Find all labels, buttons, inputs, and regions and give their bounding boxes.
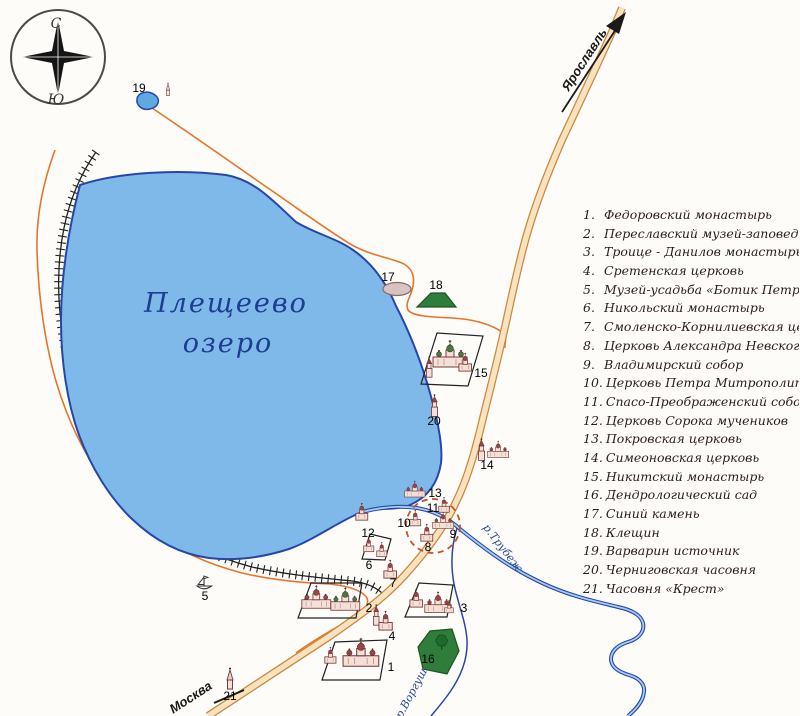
marker-5: 5	[202, 589, 209, 603]
marker-2: 2	[366, 601, 373, 615]
marker-3: 3	[461, 601, 468, 615]
legend-item-8: 8.Церковь Александра Невского	[583, 337, 799, 356]
marker-21: 21	[223, 689, 237, 703]
legend-num: 12.	[583, 412, 603, 431]
legend-item-15: 15.Никитский монастырь	[583, 468, 799, 487]
legend-label: Федоровский монастырь	[604, 207, 772, 222]
lake-name-line2: озеро	[183, 328, 274, 359]
legend-num: 14.	[583, 449, 603, 468]
legend-label: Церковь Сорока мучеников	[606, 413, 788, 428]
legend-item-14: 14.Симеоновская церковь	[583, 449, 799, 468]
legend-num: 15.	[583, 468, 603, 487]
legend-num: 16.	[583, 486, 603, 505]
legend-label: Дендрологический сад	[606, 487, 757, 502]
marker-4: 4	[389, 629, 396, 643]
legend-num: 20.	[583, 561, 603, 580]
legend-item-3: 3.Троице - Данилов монастырь	[583, 243, 799, 262]
legend-item-19: 19.Варварин источник	[583, 542, 799, 561]
legend-label: Никитский монастырь	[606, 469, 764, 484]
legend-item-18: 18.Клещин	[583, 524, 799, 543]
legend-num: 6.	[583, 299, 601, 318]
legend-num: 18.	[583, 524, 603, 543]
legend-num: 11.	[583, 393, 603, 412]
marker-14: 14	[480, 458, 494, 472]
marker-1: 1	[388, 660, 395, 674]
legend-item-20: 20.Черниговская часовня	[583, 561, 799, 580]
legend-num: 3.	[583, 243, 601, 262]
legend-item-1: 1.Федоровский монастырь	[583, 206, 799, 225]
legend-num: 8.	[583, 337, 601, 356]
legend-num: 1.	[583, 206, 601, 225]
marker-6: 6	[366, 558, 373, 572]
legend-label: Клещин	[606, 525, 660, 540]
legend-num: 4.	[583, 262, 601, 281]
legend-item-12: 12.Церковь Сорока мучеников	[583, 412, 799, 431]
legend-num: 9.	[583, 356, 601, 375]
legend-item-4: 4.Сретенская церковь	[583, 262, 799, 281]
legend-label: Церковь Петра Митрополита	[606, 375, 799, 390]
legend-label: Часовня «Крест»	[606, 581, 725, 596]
marker-18: 18	[429, 278, 443, 292]
legend-num: 19.	[583, 542, 603, 561]
legend-label: Переславский музей-заповедник	[604, 226, 799, 241]
marker-15: 15	[474, 366, 488, 380]
marker-16: 16	[421, 652, 435, 666]
compass-north-label: С	[51, 16, 62, 32]
marker-12: 12	[361, 526, 375, 540]
legend-label: Церковь Александра Невского	[604, 338, 799, 353]
legend-item-9: 9.Владимирский собор	[583, 356, 799, 375]
legend-item-17: 17.Синий камень	[583, 505, 799, 524]
marker-11: 11	[427, 501, 440, 515]
legend-item-21: 21.Часовня «Крест»	[583, 580, 799, 599]
legend: 1.Федоровский монастырь 2.Переславский м…	[583, 206, 799, 598]
legend-item-13: 13.Покровская церковь	[583, 430, 799, 449]
legend-num: 17.	[583, 505, 603, 524]
legend-label: Музей-усадьба «Ботик Петра I»	[604, 282, 799, 297]
marker-17: 17	[381, 270, 395, 284]
legend-item-11: 11.Спасо-Преображенский собор	[583, 393, 799, 412]
legend-num: 21.	[583, 580, 603, 599]
legend-label: Покровская церковь	[606, 431, 742, 446]
legend-label: Черниговская часовня	[606, 562, 756, 577]
legend-label: Симеоновская церковь	[606, 450, 759, 465]
legend-item-2: 2.Переславский музей-заповедник	[583, 225, 799, 244]
marker-9: 9	[450, 527, 457, 541]
legend-item-10: 10.Церковь Петра Митрополита	[583, 374, 799, 393]
legend-num: 10.	[583, 374, 603, 393]
legend-item-7: 7.Смоленско-Корнилиевская церковь	[583, 318, 799, 337]
marker-20: 20	[427, 414, 441, 428]
marker-7: 7	[390, 576, 397, 590]
landmark-blue-stone-icon	[383, 283, 411, 296]
legend-item-6: 6.Никольский монастырь	[583, 299, 799, 318]
legend-num: 5.	[583, 281, 601, 300]
legend-num: 13.	[583, 430, 603, 449]
legend-item-16: 16.Дендрологический сад	[583, 486, 799, 505]
marker-13: 13	[428, 486, 442, 500]
marker-8: 8	[425, 540, 432, 554]
legend-label: Никольский монастырь	[604, 300, 765, 315]
compass-south-label: Ю	[47, 92, 65, 108]
marker-10: 10	[397, 516, 411, 530]
legend-label: Спасо-Преображенский собор	[606, 394, 799, 409]
legend-label: Владимирский собор	[604, 357, 743, 372]
legend-item-5: 5.Музей-усадьба «Ботик Петра I»	[583, 281, 799, 300]
legend-label: Сретенская церковь	[604, 263, 744, 278]
legend-label: Троице - Данилов монастырь	[604, 244, 799, 259]
legend-label: Смоленско-Корнилиевская церковь	[604, 319, 799, 334]
legend-label: Синий камень	[606, 506, 700, 521]
marker-19: 19	[132, 81, 146, 95]
lake-name-line1: Плещеево	[143, 288, 308, 319]
legend-num: 2.	[583, 225, 601, 244]
legend-num: 7.	[583, 318, 601, 337]
legend-label: Варварин источник	[606, 543, 740, 558]
